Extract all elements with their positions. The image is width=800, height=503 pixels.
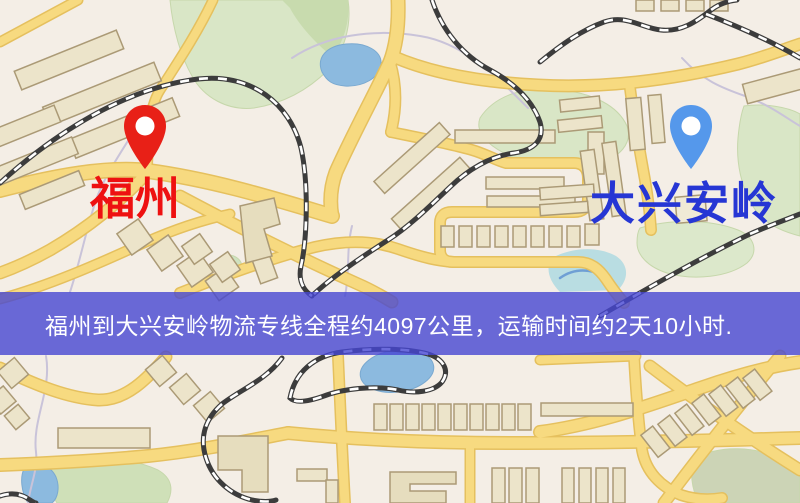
origin-city-label: 福州 [90,176,180,221]
map-graphics [0,0,800,503]
route-info-banner: 福州到大兴安岭物流专线全程约4097公里，运输时间约2天10小时. [0,292,800,355]
destination-city-label: 大兴安岭 [590,181,778,226]
route-info-text: 福州到大兴安岭物流专线全程约4097公里，运输时间约2天10小时. [45,307,732,341]
origin-pin[interactable] [122,104,168,170]
destination-pin[interactable] [668,104,714,170]
location-pin-icon [122,104,168,170]
location-pin-icon [668,104,714,170]
map-canvas[interactable]: 福州 大兴安岭 福州到大兴安岭物流专线全程约4097公里，运输时间约2天10小时… [0,0,800,503]
